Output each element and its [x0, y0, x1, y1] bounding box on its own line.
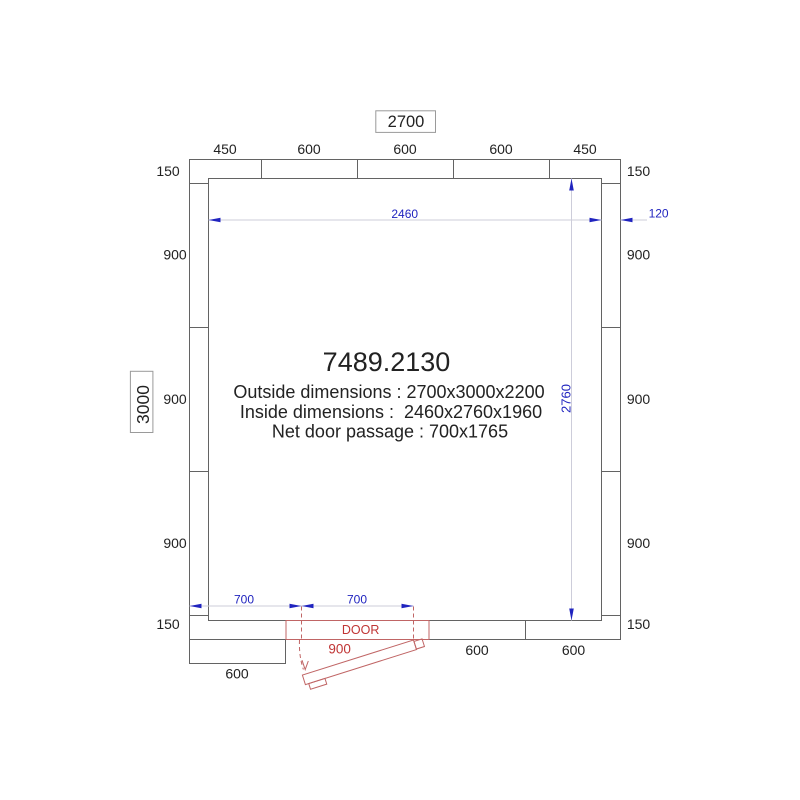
svg-text:2760: 2760	[558, 384, 573, 413]
svg-text:2460: 2460	[391, 207, 418, 221]
svg-text:900: 900	[163, 391, 187, 407]
svg-text:700: 700	[234, 593, 254, 607]
svg-text:150: 150	[156, 616, 180, 632]
svg-text:900: 900	[627, 246, 651, 262]
svg-text:900: 900	[328, 642, 351, 657]
svg-text:600: 600	[465, 642, 489, 658]
svg-text:900: 900	[627, 535, 651, 551]
svg-text:600: 600	[225, 665, 249, 681]
svg-text:150: 150	[627, 163, 651, 179]
svg-text:3000: 3000	[133, 385, 153, 424]
svg-text:Inside dimensions : 2460x2760: Inside dimensions : 2460x2760x1960	[240, 402, 542, 422]
svg-text:150: 150	[627, 616, 651, 632]
svg-text:900: 900	[627, 391, 651, 407]
svg-text:900: 900	[163, 246, 187, 262]
svg-text:2700: 2700	[388, 113, 425, 131]
svg-text:600: 600	[297, 141, 321, 157]
svg-text:600: 600	[393, 141, 417, 157]
svg-text:150: 150	[156, 163, 180, 179]
svg-text:450: 450	[213, 141, 237, 157]
svg-text:600: 600	[562, 642, 586, 658]
svg-text:700: 700	[347, 593, 367, 607]
svg-text:DOOR: DOOR	[342, 623, 380, 637]
svg-text:450: 450	[573, 141, 597, 157]
svg-text:7489.2130: 7489.2130	[323, 347, 451, 377]
svg-text:Net door passage : 700x1765: Net door passage : 700x1765	[272, 421, 508, 441]
svg-text:600: 600	[489, 141, 513, 157]
svg-text:900: 900	[163, 535, 187, 551]
svg-text:Outside dimensions : 2700x3000: Outside dimensions : 2700x3000x2200	[233, 382, 544, 402]
svg-text:120: 120	[649, 207, 669, 221]
